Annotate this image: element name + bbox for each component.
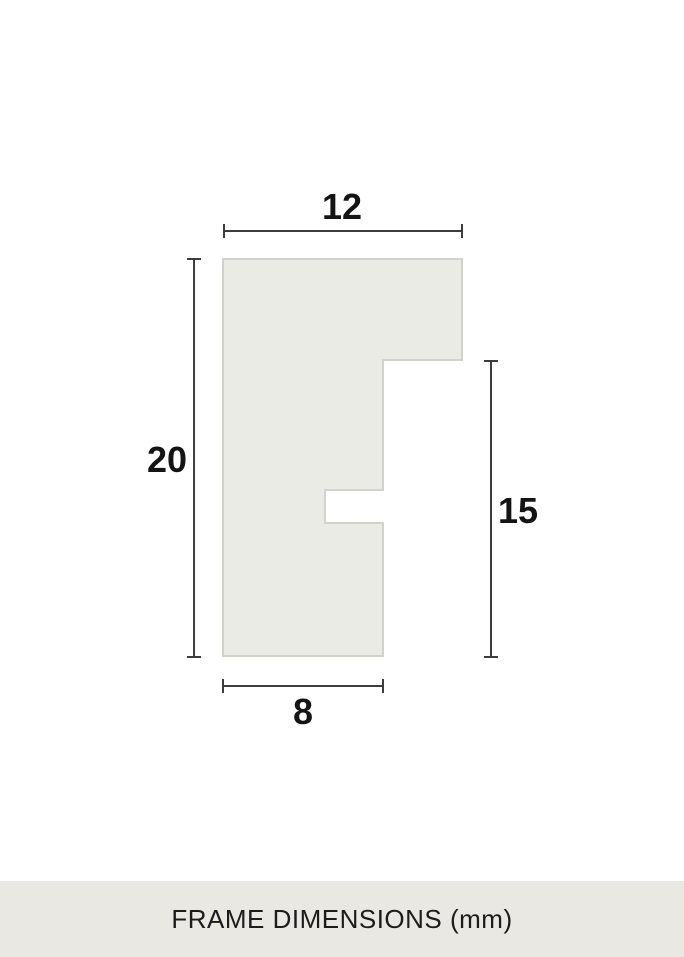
dimension-line-right (484, 361, 498, 657)
footer-bar: FRAME DIMENSIONS (mm) (0, 881, 684, 957)
frame-dimensions-page: { "diagram": { "description": "frame-pro… (0, 0, 684, 957)
footer-caption: FRAME DIMENSIONS (mm) (171, 904, 512, 935)
frame-profile-svg: 12 20 15 8 (0, 0, 684, 881)
dimension-line-left (187, 259, 201, 657)
frame-profile-diagram: 12 20 15 8 (0, 0, 684, 881)
frame-profile-shape (223, 259, 462, 656)
dimension-label-left: 20 (147, 439, 187, 480)
dimension-label-bottom: 8 (293, 691, 313, 732)
dimension-label-right: 15 (498, 490, 538, 531)
dimension-label-top: 12 (322, 186, 362, 227)
